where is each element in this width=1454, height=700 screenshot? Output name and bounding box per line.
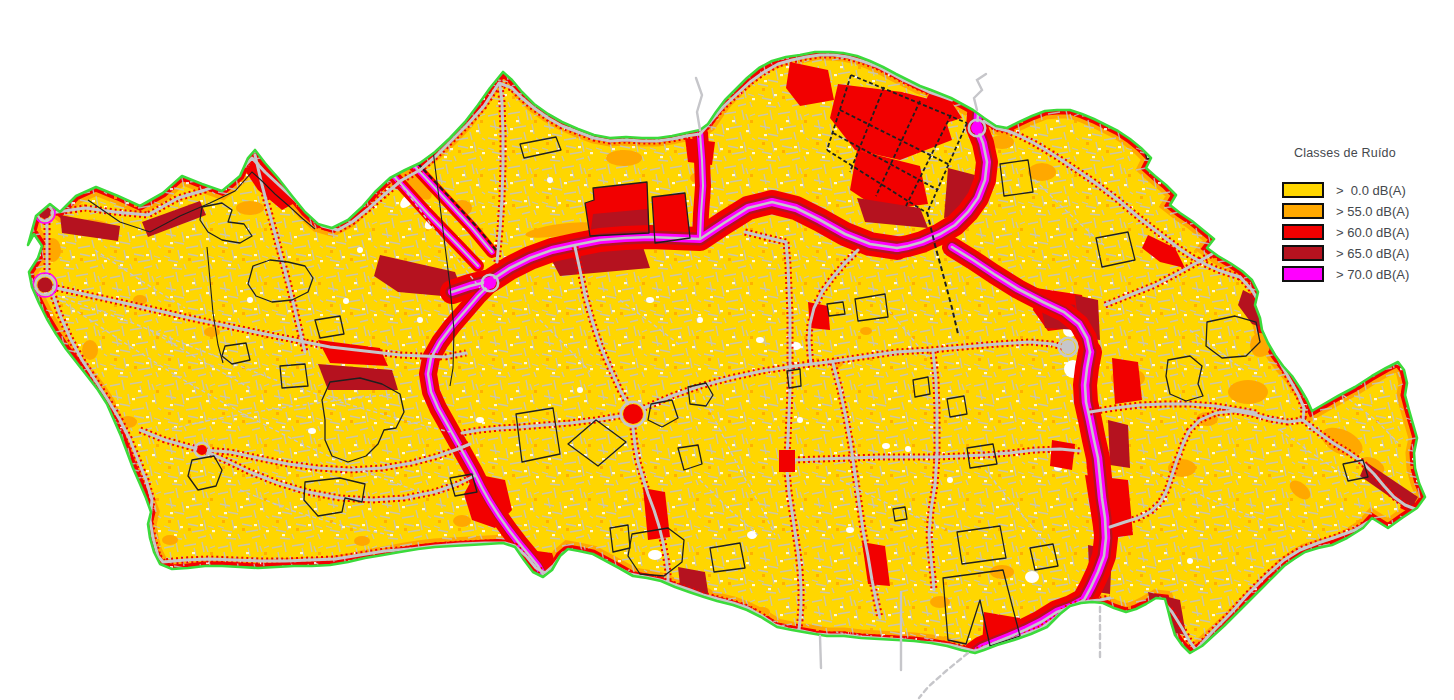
legend-item-class-gt-70: > 70.0 dB(A) <box>1282 266 1409 282</box>
legend-item-class-gt-60: > 60.0 dB(A) <box>1282 224 1409 240</box>
map-interior <box>0 0 1454 700</box>
legend-item-class-gt-55: > 55.0 dB(A) <box>1282 203 1409 219</box>
legend-item-label: > 55.0 dB(A) <box>1336 204 1409 219</box>
legend-item-label: > 70.0 dB(A) <box>1336 267 1409 282</box>
red-rects <box>779 450 795 472</box>
legend-swatch <box>1282 203 1324 219</box>
legend-items: > 0.0 dB(A)> 55.0 dB(A)> 60.0 dB(A)> 65.… <box>1282 182 1409 282</box>
legend-item-class-gt-65: > 65.0 dB(A) <box>1282 245 1409 261</box>
noise-map-page: Classes de Ruído > 0.0 dB(A)> 55.0 dB(A)… <box>0 0 1454 700</box>
legend-item-class-gt-0: > 0.0 dB(A) <box>1282 182 1409 198</box>
legend-swatch <box>1282 224 1324 240</box>
legend-item-label: > 0.0 dB(A) <box>1336 183 1406 198</box>
legend-swatch <box>1282 182 1324 198</box>
legend-title: Classes de Ruído <box>1282 146 1409 160</box>
map-legend: Classes de Ruído > 0.0 dB(A)> 55.0 dB(A)… <box>1282 146 1409 287</box>
legend-item-label: > 65.0 dB(A) <box>1336 246 1409 261</box>
noise-map <box>0 0 1454 700</box>
legend-swatch <box>1282 266 1324 282</box>
legend-item-label: > 60.0 dB(A) <box>1336 225 1409 240</box>
legend-swatch <box>1282 245 1324 261</box>
